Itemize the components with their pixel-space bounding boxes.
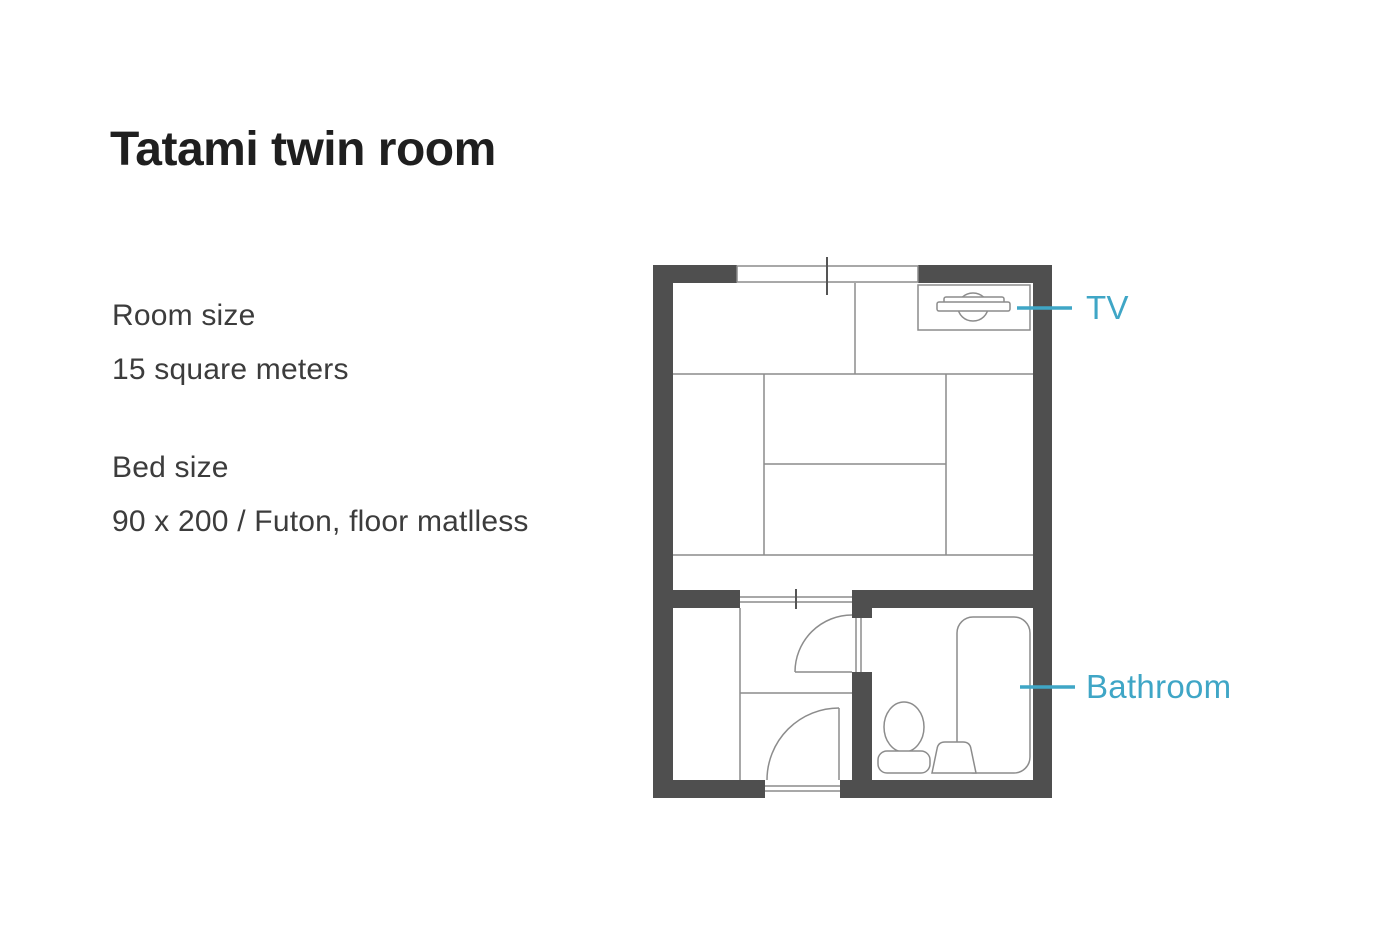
bathroom-wall-lower-segment — [852, 672, 872, 798]
sliding-door — [740, 589, 852, 609]
tv-label: TV — [1086, 289, 1129, 327]
bathroom-door-swing-arc — [795, 615, 852, 672]
entrance-door-swing-arc — [767, 708, 839, 780]
bathroom-wall-upper-stub — [852, 590, 872, 618]
right-wall — [1033, 265, 1052, 798]
interior-wall-left-segment — [672, 590, 740, 608]
bathroom-label: Bathroom — [1086, 668, 1231, 706]
washbasin-icon — [932, 742, 976, 773]
bottom-wall-left-segment — [653, 780, 765, 798]
top-wall-right-segment — [918, 265, 1052, 283]
bathroom-door — [795, 615, 861, 672]
toilet-icon — [878, 702, 930, 773]
entrance-door — [765, 708, 840, 791]
floorplan-diagram — [0, 0, 1400, 933]
interior-wall-right-segment — [852, 590, 1033, 608]
left-wall — [653, 265, 673, 798]
